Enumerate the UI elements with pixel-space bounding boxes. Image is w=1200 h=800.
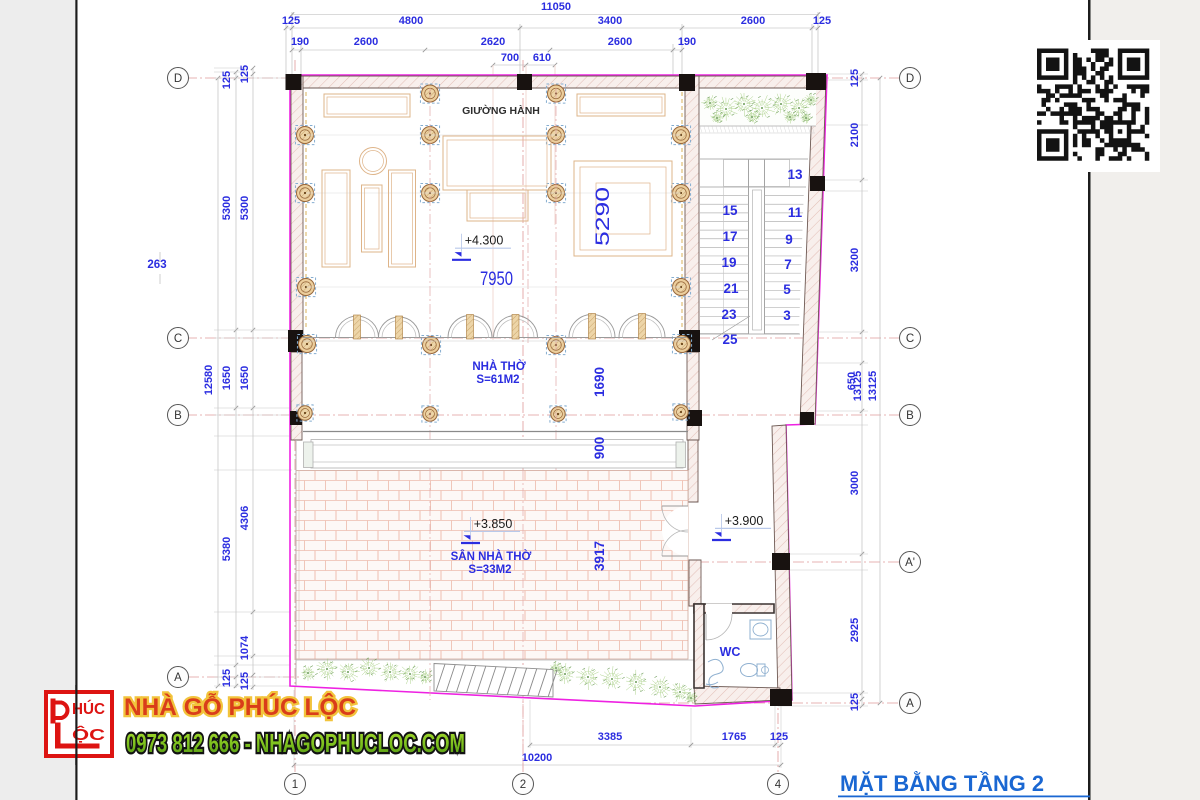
svg-text:25: 25 [722,332,738,347]
svg-text:A': A' [905,557,915,569]
svg-text:3385: 3385 [598,731,622,743]
svg-text:C: C [906,333,914,345]
svg-text:5300: 5300 [221,196,233,220]
svg-text:7: 7 [784,257,792,272]
svg-text:19: 19 [721,255,736,270]
svg-text:125: 125 [282,15,300,27]
svg-text:S=33M2: S=33M2 [468,564,511,576]
svg-text:3917: 3917 [592,541,607,571]
svg-text:125: 125 [221,71,233,89]
svg-text:21: 21 [723,281,739,296]
svg-text:2600: 2600 [741,15,765,27]
svg-text:3400: 3400 [598,15,622,27]
svg-text:2600: 2600 [608,36,632,48]
svg-text:+3.900: +3.900 [725,514,764,528]
svg-text:13: 13 [787,167,803,182]
svg-text:D: D [174,73,182,85]
svg-text:MẶT BẰNG TẦNG 2: MẶT BẰNG TẦNG 2 [840,771,1044,796]
svg-text:5: 5 [783,282,791,297]
svg-text:125: 125 [849,693,861,711]
svg-text:0973 812 666 - NHAGOPHUCLOC.CO: 0973 812 666 - NHAGOPHUCLOC.COM [126,728,465,758]
svg-text:2600: 2600 [354,36,378,48]
svg-text:610: 610 [533,52,551,64]
svg-text:3: 3 [783,308,791,323]
svg-text:NHÀ GỖ PHÚC LỘC: NHÀ GỖ PHÚC LỘC [124,692,356,721]
svg-text:D: D [906,73,914,85]
svg-text:1765: 1765 [722,731,746,743]
svg-text:S=61M2: S=61M2 [476,374,519,386]
svg-text:125: 125 [239,672,251,690]
svg-text:1690: 1690 [592,367,607,397]
svg-text:4: 4 [775,779,782,791]
svg-text:2100: 2100 [849,123,861,147]
svg-text:125: 125 [849,69,861,87]
svg-text:3000: 3000 [849,471,861,495]
svg-text:1074: 1074 [239,635,251,660]
svg-text:125: 125 [813,15,831,27]
svg-text:190: 190 [678,36,696,48]
svg-text:5300: 5300 [239,196,251,220]
svg-text:WC: WC [720,645,741,659]
svg-text:B: B [174,410,182,422]
svg-text:125: 125 [770,731,788,743]
svg-text:23: 23 [721,307,737,322]
svg-text:1650: 1650 [221,366,233,390]
svg-text:A: A [174,672,182,684]
svg-text:11050: 11050 [541,1,571,13]
svg-text:5380: 5380 [221,537,233,561]
svg-text:B: B [906,410,914,422]
svg-text:17: 17 [722,229,737,244]
svg-text:10200: 10200 [522,752,553,764]
svg-text:1: 1 [292,779,298,791]
svg-text:A: A [906,698,914,710]
svg-text:13125: 13125 [852,371,864,402]
svg-text:+4.300: +4.300 [465,234,504,248]
svg-text:700: 700 [501,52,519,64]
svg-text:2: 2 [520,779,526,791]
svg-text:2620: 2620 [481,36,505,48]
svg-text:7950: 7950 [480,269,513,290]
svg-text:263: 263 [147,259,166,271]
svg-text:NHÀ THỜ: NHÀ THỜ [472,360,525,373]
svg-text:190: 190 [291,36,309,48]
svg-text:15: 15 [722,203,738,218]
svg-text:2925: 2925 [849,618,861,642]
svg-text:1650: 1650 [239,366,251,390]
svg-text:125: 125 [221,669,233,687]
svg-text:3200: 3200 [849,248,861,272]
svg-text:GIƯỜNG HÀNH: GIƯỜNG HÀNH [462,104,540,117]
svg-text:12580: 12580 [203,365,215,396]
svg-text:11: 11 [788,205,803,220]
svg-text:5290: 5290 [593,187,614,246]
svg-text:900: 900 [592,437,607,460]
svg-text:SÂN NHÀ THỜ: SÂN NHÀ THỜ [451,550,532,563]
svg-text:13125: 13125 [867,371,879,402]
svg-text:+3.850: +3.850 [474,517,513,531]
svg-text:9: 9 [785,232,793,247]
svg-text:125: 125 [239,65,251,83]
svg-text:4306: 4306 [239,506,251,530]
svg-text:C: C [174,333,182,345]
svg-text:4800: 4800 [399,15,423,27]
